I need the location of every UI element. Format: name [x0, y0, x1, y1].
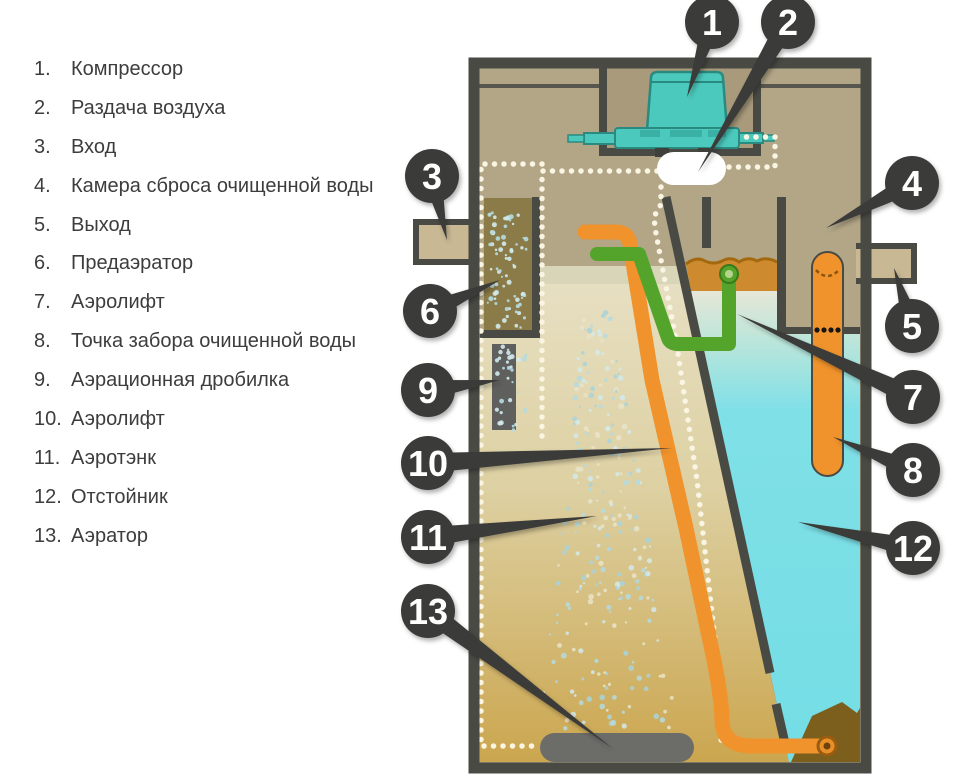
marker-number: 8: [903, 450, 923, 491]
marker-number: 3: [422, 156, 442, 197]
airlift-pipe-mouth: [824, 743, 831, 750]
marker-number: 6: [420, 291, 440, 332]
marker-number: 2: [778, 2, 798, 43]
marker-number: 1: [702, 2, 722, 43]
marker-number: 11: [409, 517, 447, 558]
marker-number: 13: [408, 591, 448, 632]
marker-number: 9: [418, 370, 438, 411]
septic-tank-cross-section: 1 2 3 4 5: [0, 0, 970, 779]
air-distributor: [657, 152, 726, 185]
marker-number: 7: [903, 377, 923, 418]
septic-system-diagram-page: 1.Компрессор 2.Раздача воздуха 3.Вход 4.…: [0, 0, 970, 779]
aerator: [540, 733, 694, 762]
baffle-wall: [702, 197, 711, 248]
discharge-chamber-wall: [777, 197, 786, 334]
predaerator-wall: [532, 197, 540, 338]
marker-number: 10: [408, 443, 448, 484]
predaerator-floor: [480, 330, 540, 338]
marker-number: 12: [893, 528, 933, 569]
marker-number: 4: [902, 163, 922, 204]
marker-number: 5: [902, 306, 922, 347]
